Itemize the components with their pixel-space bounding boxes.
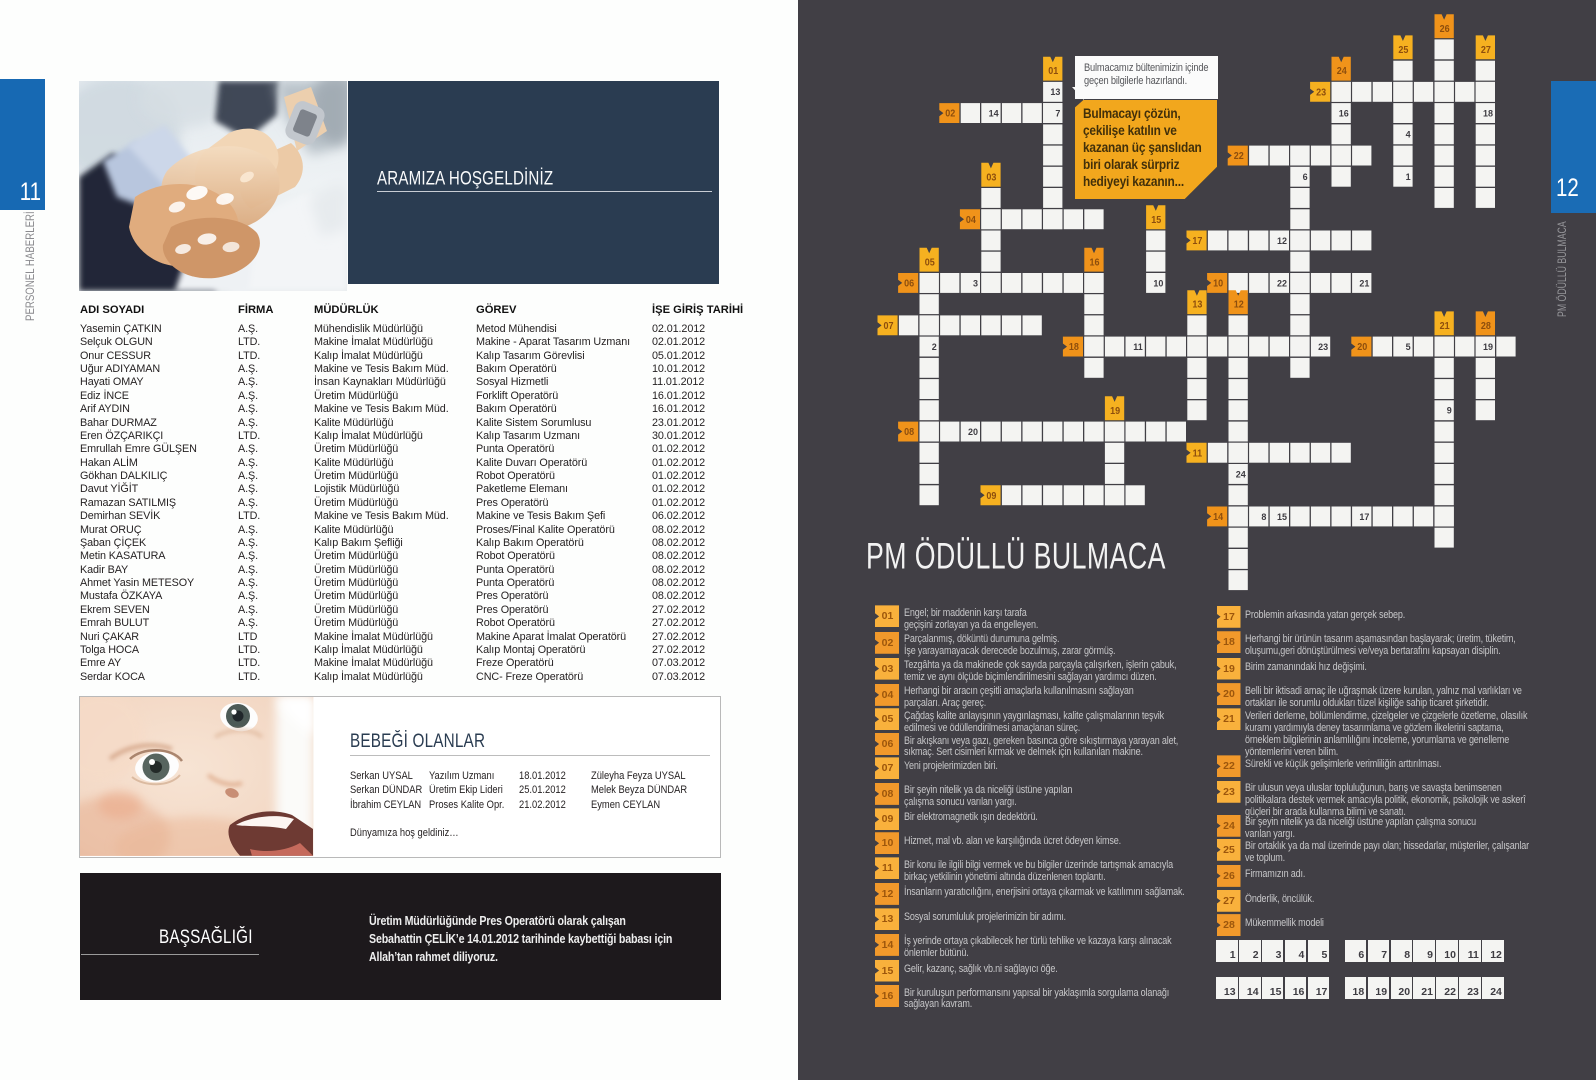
svg-text:12: 12 — [1234, 298, 1244, 309]
svg-text:03: 03 — [986, 171, 996, 182]
svg-text:21: 21 — [1440, 320, 1450, 331]
svg-text:04: 04 — [966, 213, 977, 224]
svg-text:15: 15 — [1277, 512, 1287, 522]
svg-text:14: 14 — [1213, 511, 1224, 522]
svg-text:07: 07 — [883, 320, 893, 331]
svg-text:22: 22 — [1234, 150, 1244, 161]
svg-text:21: 21 — [1359, 278, 1369, 288]
svg-text:6: 6 — [1303, 172, 1308, 182]
svg-text:7: 7 — [1055, 109, 1060, 119]
svg-text:28: 28 — [1481, 320, 1491, 331]
svg-text:27: 27 — [1481, 44, 1491, 55]
svg-text:10: 10 — [1153, 278, 1163, 288]
svg-text:9: 9 — [1447, 406, 1452, 416]
svg-text:17: 17 — [1192, 235, 1202, 246]
svg-text:20: 20 — [1357, 341, 1367, 352]
svg-text:16: 16 — [1089, 256, 1099, 267]
svg-text:11: 11 — [1193, 447, 1203, 458]
svg-text:4: 4 — [1406, 130, 1411, 140]
svg-text:01: 01 — [1048, 65, 1058, 76]
svg-text:26: 26 — [1440, 22, 1450, 33]
svg-text:16: 16 — [1339, 109, 1349, 119]
svg-text:20: 20 — [968, 427, 978, 437]
svg-text:12: 12 — [1277, 236, 1287, 246]
svg-text:8: 8 — [1261, 512, 1266, 522]
svg-text:19: 19 — [1110, 405, 1120, 416]
svg-text:24: 24 — [1337, 65, 1348, 76]
svg-text:1: 1 — [1406, 172, 1411, 182]
svg-text:13: 13 — [1192, 298, 1202, 309]
svg-text:10: 10 — [1213, 277, 1223, 288]
svg-text:2: 2 — [932, 342, 937, 352]
svg-text:17: 17 — [1359, 512, 1369, 522]
svg-text:06: 06 — [904, 277, 914, 288]
svg-text:14: 14 — [989, 109, 999, 119]
svg-text:5: 5 — [1406, 342, 1411, 352]
svg-text:18: 18 — [1069, 341, 1079, 352]
svg-text:22: 22 — [1277, 278, 1287, 288]
svg-text:25: 25 — [1398, 44, 1408, 55]
svg-text:3: 3 — [973, 278, 978, 288]
svg-text:05: 05 — [925, 256, 935, 267]
svg-text:24: 24 — [1236, 469, 1246, 479]
svg-text:11: 11 — [1133, 342, 1143, 352]
svg-text:19: 19 — [1483, 342, 1493, 352]
svg-text:18: 18 — [1483, 109, 1493, 119]
svg-text:23: 23 — [1318, 342, 1328, 352]
svg-text:02: 02 — [945, 107, 955, 118]
svg-text:13: 13 — [1050, 87, 1060, 97]
svg-text:08: 08 — [904, 426, 914, 437]
svg-text:09: 09 — [986, 489, 996, 500]
svg-text:15: 15 — [1151, 213, 1161, 224]
svg-text:23: 23 — [1316, 86, 1326, 97]
